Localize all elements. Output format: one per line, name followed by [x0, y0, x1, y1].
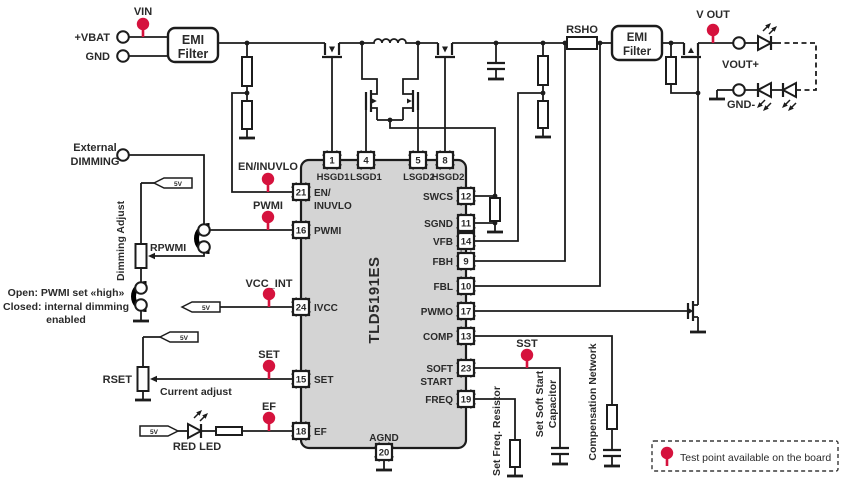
vout-plus-label: VOUT+: [722, 59, 759, 71]
rset-label: RSET: [103, 374, 133, 386]
resistor-icon: [242, 101, 252, 129]
emi-filter-input: EMI Filter: [168, 28, 218, 62]
vin-label: VIN: [134, 6, 152, 18]
pin-23-num: 23: [461, 364, 472, 375]
pin-5-label: LSGD2: [403, 172, 435, 183]
pin-24-num: 24: [296, 303, 307, 314]
ic-tld5191es: TLD5191ES 1 4 5 8 HSGD1 LSGD1 LSGD2 HSGD…: [292, 151, 476, 471]
current-adjust-label: Current adjust: [160, 386, 232, 398]
emi-output-line2: Filter: [623, 46, 652, 58]
external-dimming-label-2: DIMMING: [71, 156, 120, 168]
freq-resistor-icon: [510, 440, 520, 467]
rpwmi-label: RPWMI: [150, 242, 186, 254]
pin-16-num: 16: [296, 226, 307, 237]
gnd-label: GND: [86, 51, 111, 63]
sense-resistor-icon: [490, 198, 500, 221]
5v-flag-icon: [140, 426, 178, 436]
gnd-terminal-icon: [117, 50, 129, 62]
resistor-icon: [538, 56, 548, 85]
pin-12-num: 12: [461, 192, 472, 203]
pin-24-label: IVCC: [314, 303, 338, 314]
pin-17-label: PWMO: [421, 307, 453, 318]
pin-10-label: FBL: [434, 282, 453, 293]
emi-input-line2: Filter: [178, 47, 209, 61]
jumper-note-1: Open: PWMI set «high»: [8, 287, 125, 299]
pin-15-num: 15: [296, 375, 307, 386]
legend: Test point available on the board: [652, 441, 838, 471]
pin-17-num: 17: [461, 307, 472, 318]
pin-5-num: 5: [415, 156, 421, 167]
5v-flag-label: 5V: [174, 181, 183, 188]
vout-terminal-icon: [733, 37, 745, 49]
5v-flag-icon: [160, 332, 198, 342]
rsho-label: RSHO: [566, 24, 598, 36]
ef-label: EF: [262, 401, 276, 413]
pin-14-label: VFB: [433, 237, 453, 248]
external-dimming-terminal-icon: [117, 149, 129, 161]
pin-20-num: 20: [379, 448, 390, 459]
pin-8-num: 8: [442, 156, 447, 167]
pwmi-label: PWMI: [253, 200, 283, 212]
set-freq-label: Set Freq. Resistor: [491, 386, 503, 476]
5v-flag-label: 5V: [180, 335, 189, 342]
soft-start-label-1: Set Soft Start: [534, 370, 546, 437]
ic-name: TLD5191ES: [366, 256, 383, 343]
vbat-terminal-icon: [117, 31, 129, 43]
pin-16-label: PWMI: [314, 226, 341, 237]
set-label: SET: [258, 349, 280, 361]
pin-11-num: 11: [461, 219, 472, 230]
pin-19-num: 19: [461, 395, 472, 406]
gnd-minus-terminal-icon: [733, 84, 745, 96]
emi-filter-output: EMI Filter: [612, 26, 662, 60]
pin-21-label-2: INUVLO: [314, 201, 352, 212]
rset-pot-icon: [138, 367, 149, 391]
sst-label: SST: [516, 338, 538, 350]
pin-10-num: 10: [461, 282, 472, 293]
pin-4-num: 4: [363, 156, 369, 167]
pin-21-num: 21: [296, 188, 307, 199]
pin-19-label: FREQ: [425, 395, 453, 406]
pin-20-label: AGND: [369, 433, 398, 444]
5v-flag-icon: [182, 302, 220, 312]
jumper-note-3: enabled: [46, 314, 86, 326]
schematic-page: +VBAT GND VIN EMI Filter: [0, 0, 846, 485]
pin-23-label-1: SOFT: [426, 364, 453, 375]
5v-flag-label: 5V: [202, 305, 211, 312]
pin-8-label: HSGD2: [432, 172, 465, 183]
pin-1-num: 1: [329, 156, 335, 167]
en-inuvlo-label: EN/INUVLO: [238, 161, 298, 173]
pin-18-label: EF: [314, 427, 327, 438]
pin-15-label: SET: [314, 375, 333, 386]
pin-13-num: 13: [461, 332, 472, 343]
resistor-icon: [242, 57, 252, 86]
pin-9-num: 9: [463, 257, 468, 268]
gnd-minus-label: GND-: [727, 99, 755, 111]
rsho-resistor-icon: [567, 37, 597, 49]
5v-flag-icon: [154, 178, 192, 188]
pin-23-label-2: START: [420, 377, 453, 388]
dimming-adjust-label: Dimming Adjust: [115, 200, 127, 281]
tld5191es-application-schematic: +VBAT GND VIN EMI Filter: [0, 0, 846, 485]
legend-text: Test point available on the board: [680, 452, 831, 464]
external-dimming-label-1: External: [73, 142, 116, 154]
rpwmi-pot-icon: [136, 244, 147, 268]
pin-11-label: SGND: [424, 219, 453, 230]
pin-12-label: SWCS: [423, 192, 453, 203]
5v-flag-label: 5V: [150, 429, 159, 436]
pin-21-label-1: EN/: [314, 188, 331, 199]
pin-1-label: HSGD1: [317, 172, 350, 183]
compensation-label: Compensation Network: [587, 343, 599, 460]
emi-input-line1: EMI: [182, 33, 204, 47]
resistor-icon: [538, 101, 548, 128]
pin-4-label: LSGD1: [350, 172, 382, 183]
pin-14-num: 14: [461, 237, 472, 248]
red-led-label: RED LED: [173, 441, 221, 453]
soft-start-label-2: Capacitor: [547, 380, 559, 428]
rsho-sense-resistor: RSHO: [566, 24, 598, 49]
vout-label: V OUT: [696, 9, 730, 21]
vbat-label: +VBAT: [74, 32, 110, 44]
gate-pullup-resistor-icon: [666, 57, 676, 84]
led-resistor-icon: [216, 427, 242, 435]
pin-18-num: 18: [296, 427, 307, 438]
pin-13-label: COMP: [423, 332, 453, 343]
comp-resistor-icon: [607, 405, 617, 429]
pin-9-label: FBH: [432, 257, 453, 268]
jumper-note-2: Closed: internal dimming: [3, 301, 129, 313]
emi-output-line1: EMI: [627, 32, 647, 44]
